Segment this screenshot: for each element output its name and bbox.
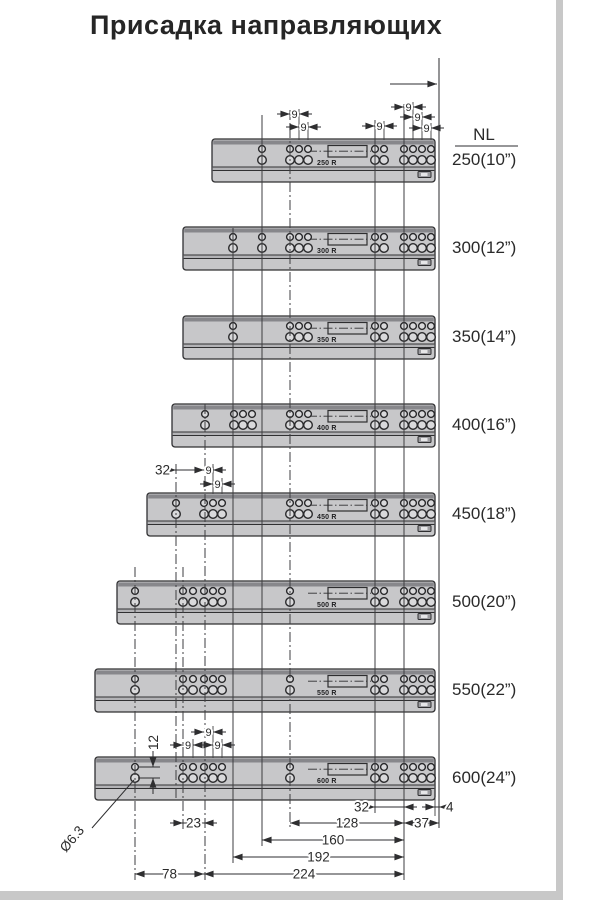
rail-top-band (96, 759, 434, 763)
dimension-label: 9 (291, 109, 297, 121)
drill-hole (428, 411, 435, 418)
drill-hole (427, 774, 436, 783)
rail-latch-slot (421, 703, 428, 706)
rail-print-text: 400 R (317, 425, 337, 432)
dimension-label: 37 (414, 816, 429, 831)
drill-hole (248, 421, 257, 430)
dimension-23: 23 (170, 816, 217, 831)
drill-hole (418, 774, 427, 783)
rail-latch-slot (421, 615, 428, 618)
drill-hole (418, 686, 427, 695)
drill-hole (409, 686, 418, 695)
drill-hole (410, 323, 417, 330)
page-right-edge-bar (556, 0, 563, 900)
drill-hole (219, 588, 226, 595)
drill-hole (410, 676, 417, 683)
drill-hole (409, 598, 418, 607)
rail-250: 250 R (212, 139, 435, 182)
drill-hole (218, 774, 227, 783)
drill-hole (409, 333, 418, 342)
rail-latch-slot (421, 791, 428, 794)
drill-hole (427, 244, 436, 253)
drill-hole (427, 333, 436, 342)
rail-top-band (184, 318, 434, 322)
drill-hole (231, 411, 238, 418)
drill-hole (219, 500, 226, 507)
drill-hole (410, 411, 417, 418)
drill-hole (201, 676, 208, 683)
size-labels-group: 250(10”)300(12”)350(14”)400(16”)450(18”)… (452, 150, 516, 787)
drill-hole (201, 764, 208, 771)
page-title: Присадка направляющих (90, 10, 442, 40)
drill-hole (304, 421, 313, 430)
rail-top-band (184, 229, 434, 233)
drill-hole (190, 588, 197, 595)
drill-hole (209, 686, 218, 695)
drill-hole (419, 676, 426, 683)
drill-hole (201, 588, 208, 595)
page-bottom-edge-bar (0, 891, 563, 900)
drill-hole (295, 333, 304, 342)
drill-hole (209, 510, 218, 519)
dimension-label: 78 (162, 867, 177, 882)
drill-hole (380, 510, 389, 519)
drill-hole (427, 686, 436, 695)
drill-hole (409, 510, 418, 519)
dimension-label: 9 (205, 465, 211, 477)
dimension-9: 9 (391, 102, 426, 114)
rail-print-text: 600 R (317, 778, 337, 785)
drill-hole (428, 588, 435, 595)
rail-top-band (173, 406, 434, 410)
drill-hole (380, 244, 389, 253)
rail-450: 450 R (147, 493, 435, 536)
drill-hole (218, 598, 227, 607)
drill-hole (409, 244, 418, 253)
size-label-600: 600(24”) (452, 768, 516, 787)
dimension-9: 9 (191, 727, 226, 739)
drill-hole (295, 244, 304, 253)
drill-hole (304, 156, 313, 165)
rail-print-text: 550 R (317, 690, 337, 697)
drill-hole (218, 510, 227, 519)
drill-hole (381, 588, 388, 595)
drill-hole (380, 156, 389, 165)
drill-hole (190, 676, 197, 683)
rail-latch-slot (421, 350, 428, 353)
dimension-label: 9 (185, 740, 191, 752)
hole-diameter-label: Ø6.3 (57, 823, 87, 855)
drill-hole (409, 421, 418, 430)
dimension-label: 32 (155, 463, 170, 478)
rail-runner-groove (118, 609, 435, 613)
dimension-label: 23 (186, 816, 201, 831)
size-label-550: 550(22”) (452, 680, 516, 699)
drill-hole (427, 510, 436, 519)
drill-hole (427, 421, 436, 430)
drill-hole (380, 333, 389, 342)
rail-runner-groove (148, 521, 435, 525)
drill-hole (304, 510, 313, 519)
drill-hole (189, 686, 198, 695)
drill-hole (381, 411, 388, 418)
drill-hole (210, 764, 217, 771)
dimension-37: 37 (404, 816, 439, 831)
dimension-label: 9 (405, 102, 411, 114)
drill-hole (419, 234, 426, 241)
drill-hole (200, 774, 209, 783)
drill-hole (410, 764, 417, 771)
drill-hole (249, 411, 256, 418)
drill-hole (305, 500, 312, 507)
rail-latch-slot (421, 173, 428, 176)
dimension-label: 12 (146, 735, 161, 750)
drill-hole (428, 146, 435, 153)
rail-400: 400 R (172, 404, 435, 447)
rail-latch-slot (421, 261, 428, 264)
drill-hole (210, 500, 217, 507)
size-label-400: 400(16”) (452, 415, 516, 434)
page: Присадка направляющих NL 250 R300 R350 R… (0, 0, 600, 900)
drill-hole (200, 510, 209, 519)
drill-hole (418, 333, 427, 342)
drill-hole (304, 333, 313, 342)
drill-hole (428, 323, 435, 330)
drill-hole (409, 156, 418, 165)
drill-hole (219, 676, 226, 683)
dimension-128: 128 (290, 816, 404, 831)
dimension-label: 32 (354, 800, 369, 815)
drill-hole (381, 146, 388, 153)
rail-print-text: 500 R (317, 602, 337, 609)
drill-hole (419, 500, 426, 507)
dimension-160: 160 (262, 833, 404, 848)
rail-top-band (96, 671, 434, 675)
drill-hole (410, 234, 417, 241)
rail-runner-groove (96, 697, 435, 701)
dimension-192: 192 (233, 850, 404, 865)
rail-latch-slot (421, 527, 428, 530)
size-label-450: 450(18”) (452, 504, 516, 523)
dimension-label: 9 (205, 727, 211, 739)
dimension-32: 32 (354, 800, 417, 815)
drill-hole (418, 421, 427, 430)
size-label-300: 300(12”) (452, 238, 516, 257)
drill-hole (410, 588, 417, 595)
drill-hole (190, 764, 197, 771)
drill-hole (296, 500, 303, 507)
drill-hole (410, 146, 417, 153)
size-label-350: 350(14”) (452, 327, 516, 346)
drill-hole (410, 500, 417, 507)
drill-hole (296, 411, 303, 418)
drill-hole (427, 598, 436, 607)
rails-group: 250 R300 R350 R400 R450 R500 R550 R600 R (95, 139, 435, 800)
drill-hole (418, 598, 427, 607)
dimension-label: 9 (423, 123, 429, 135)
drill-hole (428, 500, 435, 507)
drill-hole (418, 244, 427, 253)
drill-hole (381, 323, 388, 330)
drill-hole (296, 323, 303, 330)
rail-500: 500 R (117, 581, 435, 624)
dimension-label: 9 (414, 112, 420, 124)
drill-hole (381, 676, 388, 683)
drill-hole (209, 598, 218, 607)
rail-runner-groove (213, 167, 435, 171)
dimension-label: 9 (214, 740, 220, 752)
dimension-9: 9 (170, 740, 206, 752)
dimension-9: 9 (191, 465, 226, 477)
drill-hole (304, 244, 313, 253)
rail-top-band (148, 495, 434, 499)
drill-hole (295, 421, 304, 430)
dimension-label: 9 (300, 122, 306, 134)
drill-hole (428, 234, 435, 241)
drill-hole (419, 764, 426, 771)
dimension-label: 9 (214, 479, 220, 491)
dimension-label: 160 (322, 833, 345, 848)
drill-hole (240, 411, 247, 418)
drill-hole (200, 598, 209, 607)
drill-hole (427, 156, 436, 165)
drill-hole (381, 764, 388, 771)
rail-runner-groove (173, 432, 435, 436)
drill-hole (380, 598, 389, 607)
rail-300: 300 R (183, 227, 435, 270)
drill-hole (419, 146, 426, 153)
dimension-9: 9 (286, 122, 321, 134)
drill-hole (418, 156, 427, 165)
drill-hole (201, 500, 208, 507)
drill-hole (305, 411, 312, 418)
drill-hole (381, 500, 388, 507)
drill-hole (296, 234, 303, 241)
drill-hole (419, 323, 426, 330)
rail-runner-groove (96, 785, 435, 789)
rail-runner-groove (184, 344, 435, 348)
dimension-4: 4 (422, 800, 454, 815)
nl-column-header: NL (473, 125, 495, 144)
size-label-250: 250(10”) (452, 150, 516, 169)
dimension-9: 9 (362, 121, 397, 133)
rail-print-text: 350 R (317, 337, 337, 344)
rail-top-band (118, 583, 434, 587)
dimension-224: 224 (204, 867, 404, 882)
dimension-78: 78 (135, 867, 204, 882)
drill-hole (305, 234, 312, 241)
drill-hole (296, 146, 303, 153)
drill-hole (189, 598, 198, 607)
drill-hole (210, 588, 217, 595)
rail-top-band (213, 141, 434, 145)
dimension-label: 128 (336, 816, 359, 831)
dimension-label: 9 (376, 121, 382, 133)
drilling-diagram: Присадка направляющих NL 250 R300 R350 R… (0, 0, 600, 900)
drill-hole (239, 421, 248, 430)
drill-hole (419, 588, 426, 595)
drill-hole (428, 676, 435, 683)
rail-350: 350 R (183, 316, 435, 359)
drill-hole (380, 421, 389, 430)
rail-runner-groove (184, 255, 435, 259)
drill-hole (295, 510, 304, 519)
dimension-label: 4 (446, 800, 454, 815)
dimension-label: 224 (293, 867, 316, 882)
drill-hole (230, 421, 239, 430)
drill-hole (218, 686, 227, 695)
rail-print-text: 300 R (317, 248, 337, 255)
rail-print-text: 250 R (317, 160, 337, 167)
drill-hole (305, 146, 312, 153)
rail-print-text: 450 R (317, 514, 337, 521)
drill-hole (428, 764, 435, 771)
drill-hole (380, 774, 389, 783)
drill-hole (409, 774, 418, 783)
size-label-500: 500(20”) (452, 592, 516, 611)
drill-hole (200, 686, 209, 695)
drill-hole (305, 323, 312, 330)
drill-hole (189, 774, 198, 783)
dimension-9: 9 (277, 109, 312, 121)
drill-hole (295, 156, 304, 165)
drill-hole (380, 686, 389, 695)
dimension-label: 192 (307, 850, 330, 865)
rail-latch-slot (421, 438, 428, 441)
drill-hole (419, 411, 426, 418)
rail-550: 550 R (95, 669, 435, 712)
drill-hole (219, 764, 226, 771)
drill-hole (210, 676, 217, 683)
drill-hole (209, 774, 218, 783)
drill-hole (381, 234, 388, 241)
drill-hole (418, 510, 427, 519)
